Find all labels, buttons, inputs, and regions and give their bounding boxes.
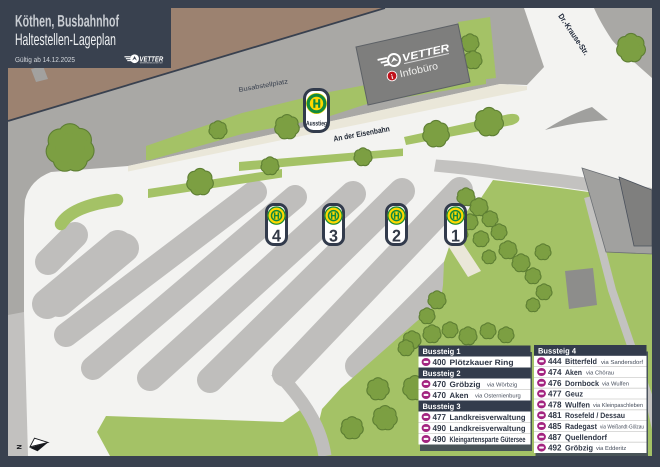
svg-text:477: 477 <box>548 389 562 399</box>
svg-text:via Kleinpaschleben: via Kleinpaschleben <box>593 402 643 409</box>
svg-text:VERKEHRSGESELLSCHAFT mbH: VERKEHRSGESELLSCHAFT mbH <box>140 62 163 65</box>
svg-text:1: 1 <box>451 227 460 246</box>
svg-text:Aken: Aken <box>565 368 582 377</box>
svg-text:487: 487 <box>548 432 562 442</box>
svg-text:478: 478 <box>548 399 562 409</box>
svg-text:Gröbzig: Gröbzig <box>565 444 593 453</box>
svg-text:3: 3 <box>329 227 338 246</box>
svg-text:Bitterfeld: Bitterfeld <box>565 357 597 366</box>
svg-text:470: 470 <box>433 379 447 389</box>
svg-text:485: 485 <box>548 421 562 431</box>
svg-text:Bussteig 2: Bussteig 2 <box>423 369 462 378</box>
svg-text:Bussteig 1: Bussteig 1 <box>423 347 462 356</box>
svg-text:477: 477 <box>433 412 447 422</box>
svg-text:via Edderitz: via Edderitz <box>596 445 626 452</box>
svg-text:via Sandersdorf: via Sandersdorf <box>601 359 643 366</box>
svg-text:470: 470 <box>433 390 447 400</box>
svg-text:Bussteig 4: Bussteig 4 <box>538 346 577 355</box>
svg-text:2: 2 <box>392 227 401 246</box>
svg-text:Plötzkauer Ring: Plötzkauer Ring <box>450 358 514 367</box>
svg-text:via Wörbzig: via Wörbzig <box>487 382 517 389</box>
svg-text:Quellendorf: Quellendorf <box>565 433 607 442</box>
svg-text:490: 490 <box>433 434 447 444</box>
svg-text:Bussteig 3: Bussteig 3 <box>423 402 462 411</box>
svg-text:Haltestellen-Lageplan: Haltestellen-Lageplan <box>15 31 116 49</box>
svg-text:via Wulfen: via Wulfen <box>602 380 629 387</box>
svg-text:444: 444 <box>548 356 562 366</box>
svg-text:Rosefeld / Dessau: Rosefeld / Dessau <box>565 411 625 420</box>
svg-text:via Osternienburg: via Osternienburg <box>475 393 521 400</box>
svg-text:Gültig ab 14.12.2025: Gültig ab 14.12.2025 <box>15 55 75 64</box>
svg-text:Gröbzig: Gröbzig <box>450 380 481 389</box>
svg-text:476: 476 <box>548 378 562 388</box>
svg-text:Radegast: Radegast <box>565 422 597 431</box>
svg-text:400: 400 <box>433 357 447 367</box>
svg-text:Landkreisverwaltung: Landkreisverwaltung <box>450 413 526 422</box>
svg-text:via Chörau: via Chörau <box>586 370 614 377</box>
svg-text:Geuz: Geuz <box>565 390 583 399</box>
svg-text:Landkreisverwaltung: Landkreisverwaltung <box>450 424 526 433</box>
svg-text:474: 474 <box>548 367 562 377</box>
svg-text:481: 481 <box>548 410 562 420</box>
svg-text:Aken: Aken <box>450 391 469 400</box>
svg-text:Kleingartensparte Gütersee: Kleingartensparte Gütersee <box>450 435 526 444</box>
svg-text:Wulfen: Wulfen <box>565 400 590 409</box>
svg-text:Dornbock: Dornbock <box>565 379 600 388</box>
svg-text:492: 492 <box>548 443 562 453</box>
svg-text:via Weißandt-Gölzau: via Weißandt-Gölzau <box>600 424 644 431</box>
svg-text:490: 490 <box>433 423 447 433</box>
svg-text:Ausstieg: Ausstieg <box>306 121 327 128</box>
svg-text:4: 4 <box>272 227 282 246</box>
svg-text:Köthen, Busbahnhof: Köthen, Busbahnhof <box>15 13 119 31</box>
svg-text:N: N <box>17 445 24 450</box>
